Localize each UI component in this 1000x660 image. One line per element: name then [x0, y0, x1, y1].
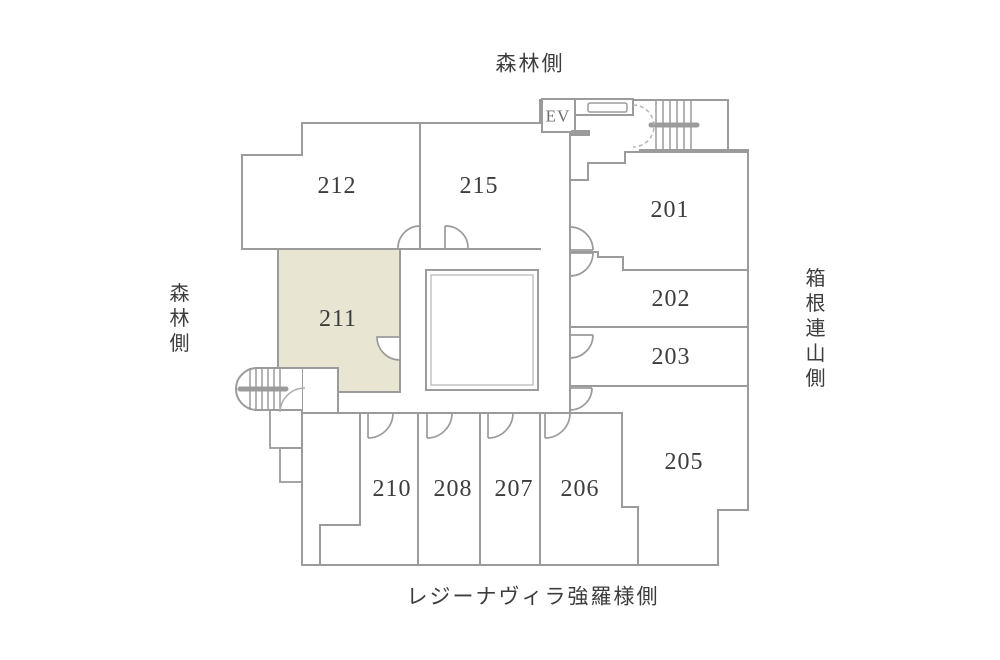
elevator-door-sill: [571, 130, 590, 136]
side-label-left-forest: 森林側: [167, 283, 187, 358]
room-label-203: 203: [652, 345, 691, 369]
elevator-label: EV: [546, 108, 571, 125]
side-label-right-hakone-mountains: 箱根連山側: [803, 268, 823, 393]
room-label-210: 210: [373, 477, 412, 501]
room-label-201: 201: [651, 198, 690, 222]
west-staircase: [236, 368, 302, 410]
north-staircase: [633, 100, 697, 150]
floorplan-drawing: [0, 0, 1000, 660]
elevator-car: [588, 103, 627, 112]
room-label-212: 212: [318, 174, 357, 198]
floorplan-canvas: 201 202 203 205 206 207 208 210 211 212 …: [0, 0, 1000, 660]
side-label-bottom-regina-villa: レジーナヴィラ強羅様側: [407, 587, 660, 608]
room-label-208: 208: [434, 477, 473, 501]
room-label-211: 211: [319, 307, 357, 331]
side-label-top-forest: 森林側: [496, 54, 565, 75]
entrance-steps: [270, 410, 302, 482]
room-label-205: 205: [665, 450, 704, 474]
courtyard: [426, 270, 538, 390]
room-label-202: 202: [652, 287, 691, 311]
room-label-207: 207: [495, 477, 534, 501]
room-label-215: 215: [460, 174, 499, 198]
room-label-206: 206: [561, 477, 600, 501]
